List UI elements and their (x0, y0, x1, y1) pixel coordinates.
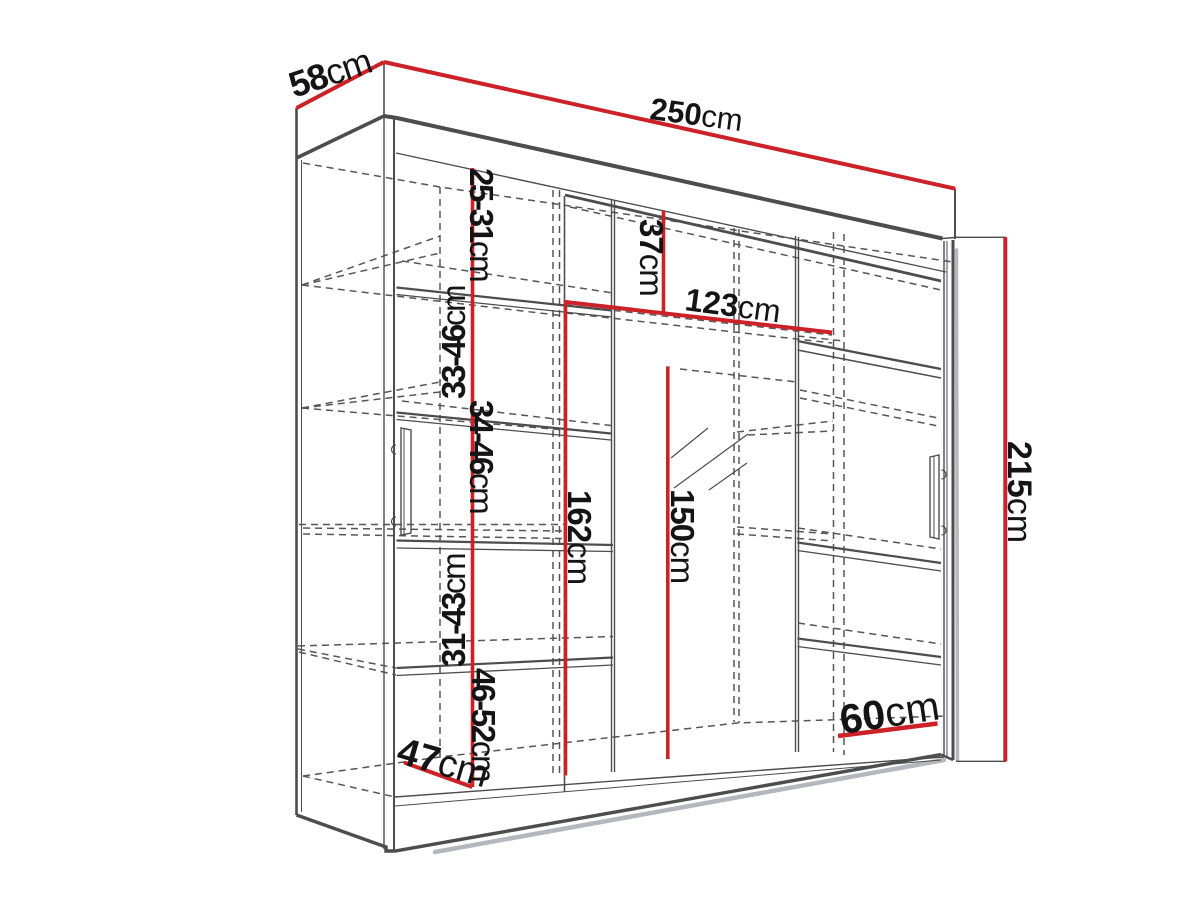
svg-text:37cm: 37cm (633, 219, 670, 296)
svg-text:25-31cm: 25-31cm (463, 168, 500, 281)
svg-text:34-46cm: 34-46cm (463, 400, 500, 513)
svg-text:33-46cm: 33-46cm (435, 286, 472, 399)
svg-text:150cm: 150cm (664, 489, 701, 583)
svg-text:31-43cm: 31-43cm (435, 554, 472, 667)
svg-text:162cm: 162cm (561, 490, 598, 584)
svg-text:215cm: 215cm (1000, 441, 1038, 543)
